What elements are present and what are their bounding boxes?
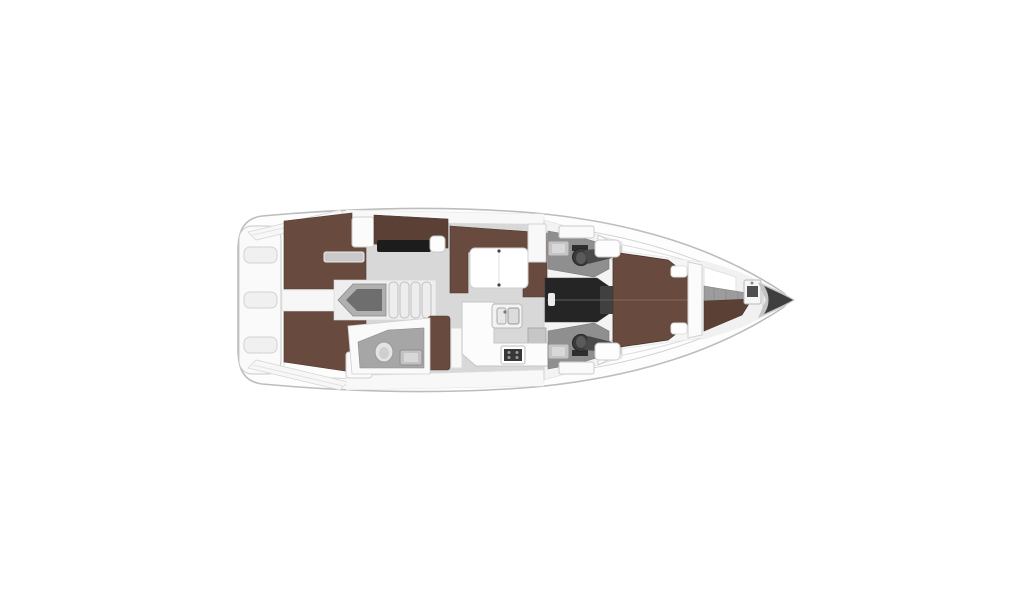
stair-tread: [422, 282, 431, 318]
aft-head: [348, 318, 430, 374]
stair-tread: [411, 282, 420, 318]
passageway: [545, 278, 614, 322]
aft-port-shelf: [324, 252, 364, 262]
pillow: [671, 266, 687, 277]
stair-tread: [400, 282, 409, 318]
basin-bowl: [747, 286, 758, 297]
yacht-floorplan-canvas: [0, 0, 1024, 600]
bedside-table: [595, 240, 620, 257]
stern-platform: [239, 226, 284, 374]
table-hinge: [497, 283, 500, 286]
nav-seat: [430, 236, 445, 252]
toilet-bowl: [576, 252, 586, 264]
pillow: [671, 323, 687, 334]
basin-bowl: [552, 347, 565, 356]
galley-bench: [428, 316, 450, 370]
stair-tread: [389, 282, 398, 318]
stern-step: [244, 337, 277, 353]
burner-icon: [508, 351, 511, 354]
companionway-stairs: [334, 280, 436, 320]
toilet-bowl: [379, 347, 389, 359]
chart-table: [377, 240, 431, 252]
stove-top: [504, 349, 522, 361]
basin-bowl: [552, 244, 565, 253]
door-handle-icon: [548, 293, 555, 306]
faucet-icon: [751, 282, 754, 285]
sink-bowl: [508, 308, 519, 324]
burner-icon: [516, 356, 519, 359]
head-cabinet: [559, 226, 594, 238]
burner-icon: [508, 356, 511, 359]
sink-drainer: [497, 308, 506, 324]
stern-step: [244, 292, 277, 308]
yacht-floorplan: [0, 0, 1024, 600]
bedside-table: [595, 343, 620, 360]
forward-bulkhead: [688, 262, 702, 338]
head-cabinet: [559, 362, 594, 374]
aft-cabin-port: [284, 213, 374, 289]
stern-step: [244, 247, 277, 263]
burner-icon: [516, 351, 519, 354]
table-hinge: [497, 249, 500, 252]
aft-port-wardrobe: [352, 217, 374, 247]
faucet-icon: [503, 310, 506, 313]
galley-side-panel: [451, 328, 462, 368]
basin-bowl: [404, 353, 418, 362]
salon-cabinet: [528, 224, 546, 262]
toilet-bowl: [576, 336, 586, 348]
